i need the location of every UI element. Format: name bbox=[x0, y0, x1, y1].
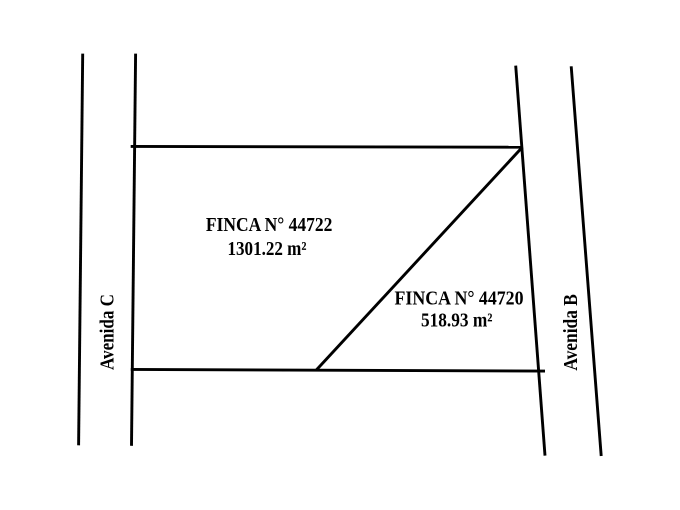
svg-text:Avenida C: Avenida C bbox=[96, 294, 118, 370]
svg-text:518.93 m²: 518.93 m² bbox=[421, 310, 493, 332]
svg-text:FINCA N° 44720: FINCA N° 44720 bbox=[395, 288, 524, 310]
svg-text:1301.22 m²: 1301.22 m² bbox=[228, 238, 307, 260]
svg-text:FINCA N° 44722: FINCA N° 44722 bbox=[206, 214, 333, 236]
svg-text:Avenida B: Avenida B bbox=[560, 294, 582, 371]
